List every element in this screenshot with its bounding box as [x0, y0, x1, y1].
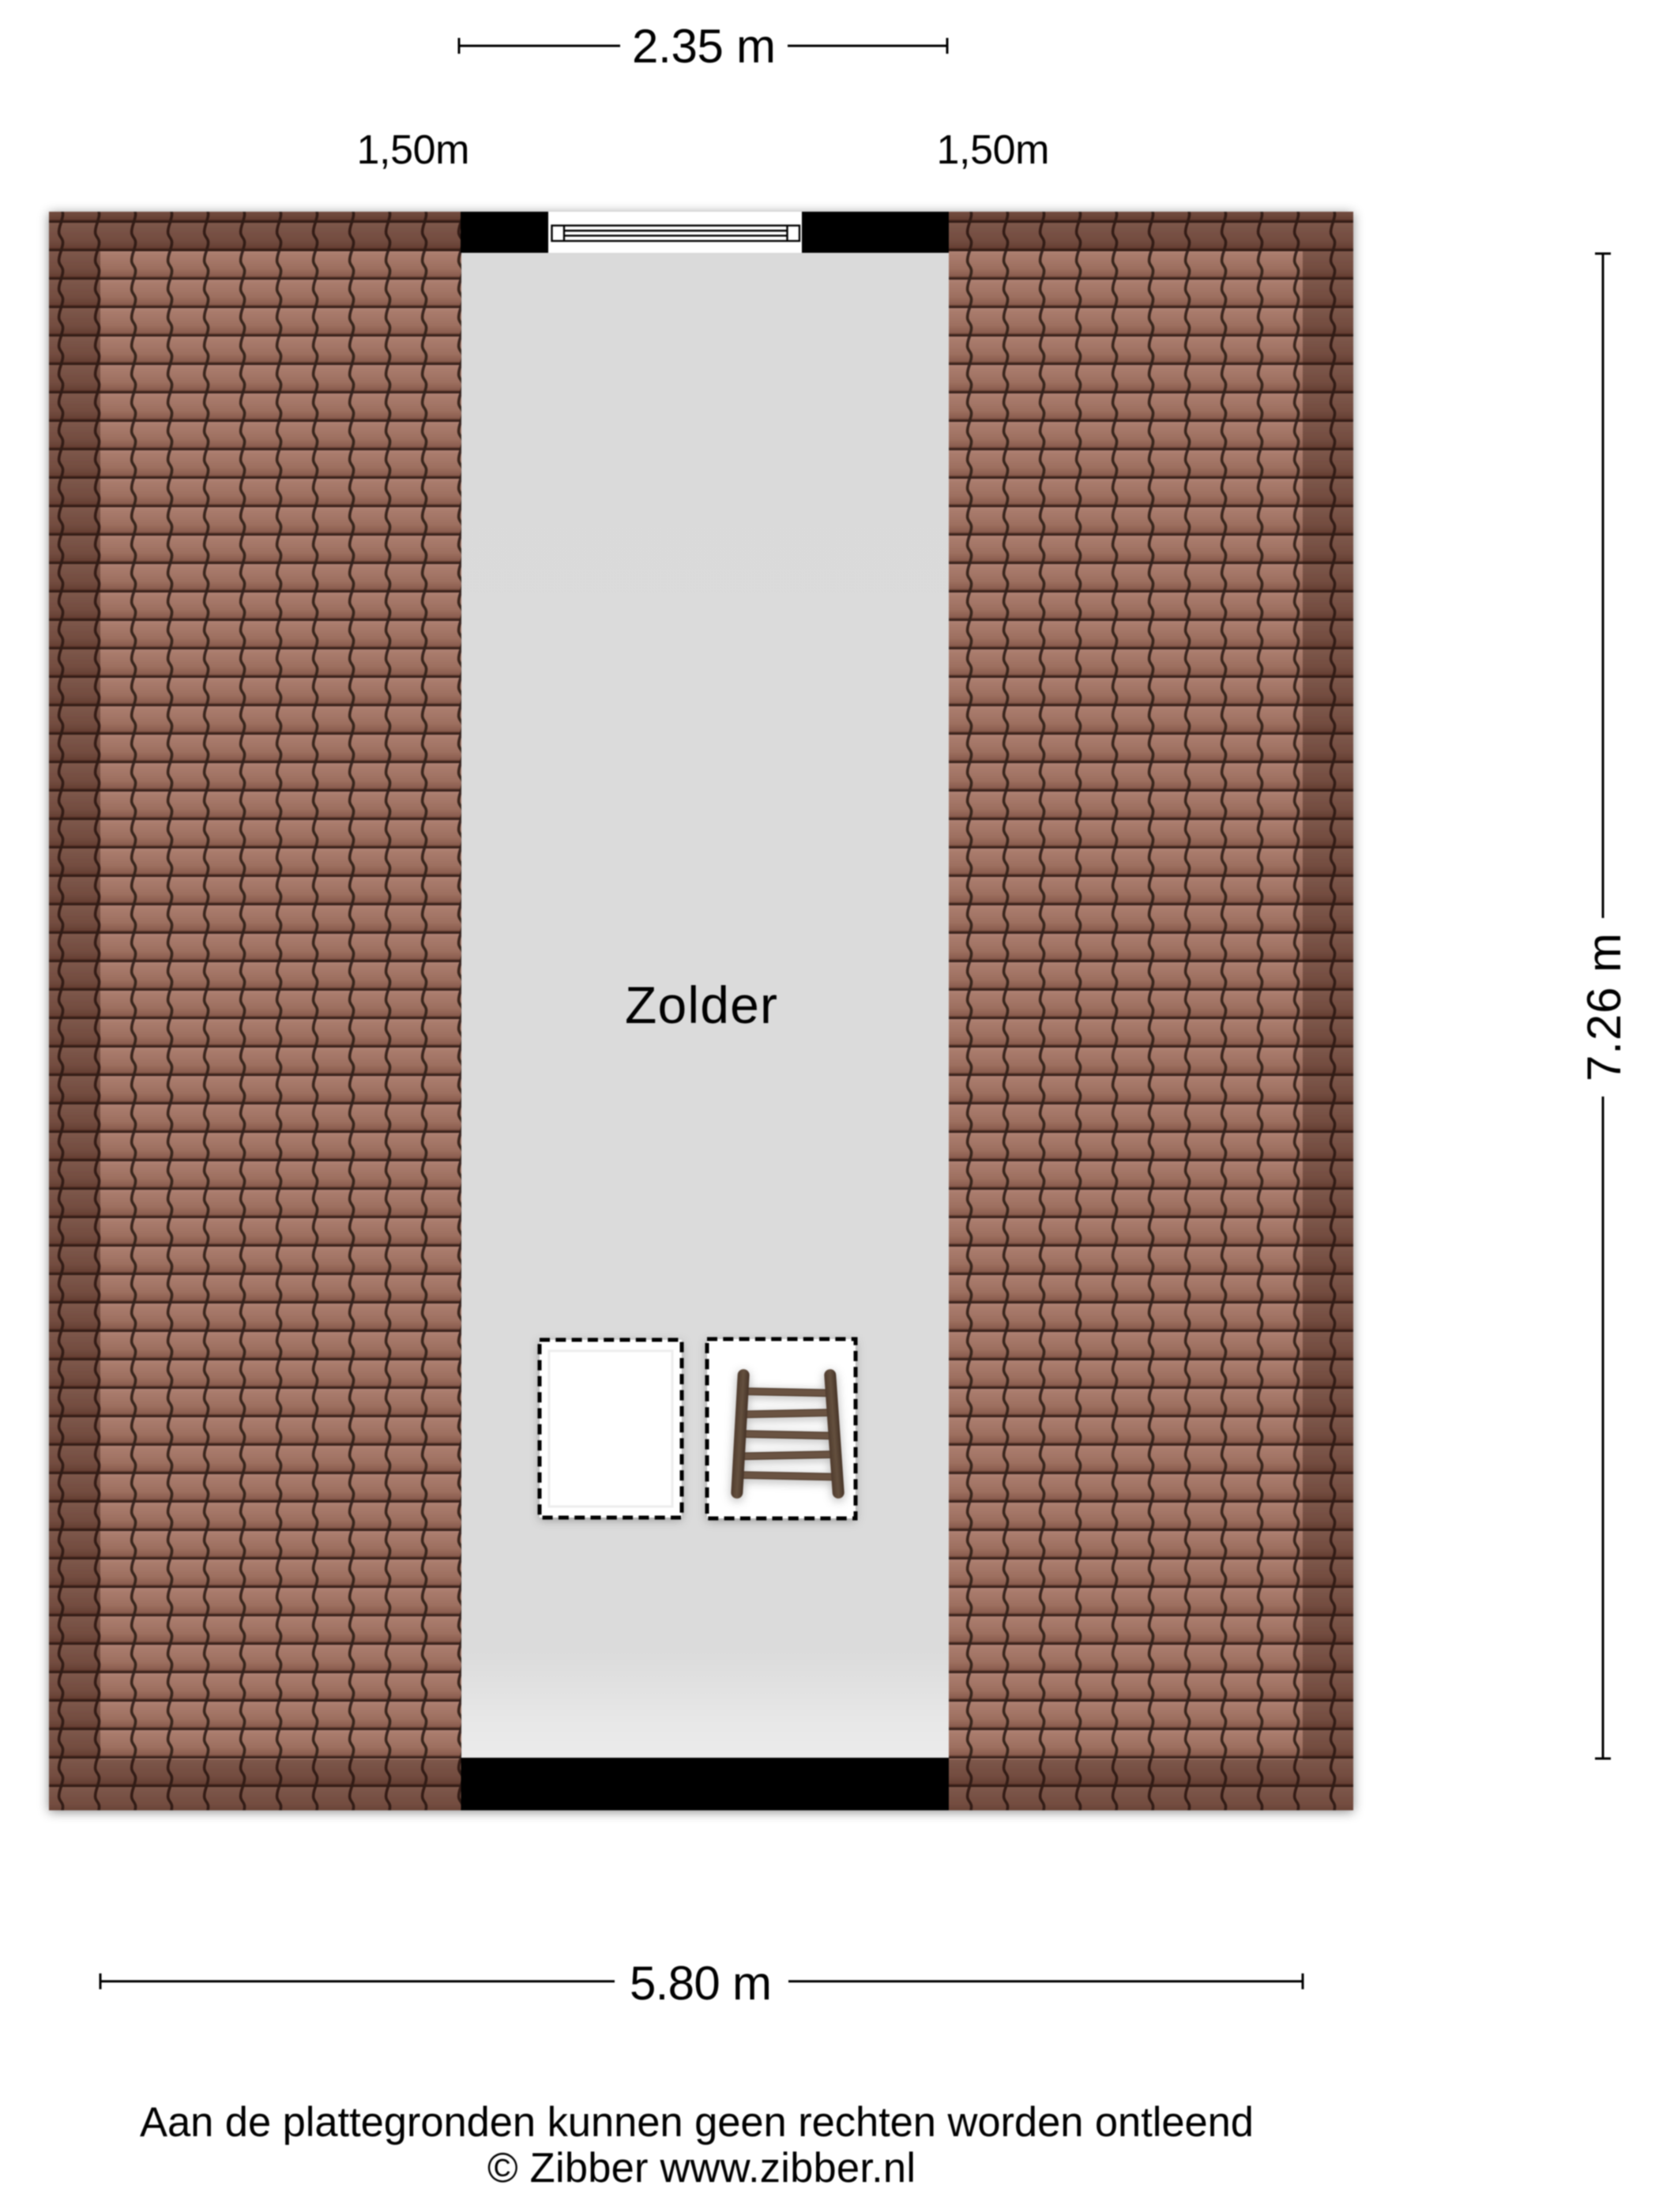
svg-text:1,50m: 1,50m	[937, 127, 1050, 173]
svg-text:© Zibber www.zibber.nl: © Zibber www.zibber.nl	[487, 2145, 916, 2191]
svg-text:7.26 m: 7.26 m	[1578, 933, 1631, 1082]
svg-text:1,50m: 1,50m	[357, 127, 470, 173]
svg-text:Zolder: Zolder	[625, 976, 777, 1034]
svg-text:Aan de plattegronden kunnen ge: Aan de plattegronden kunnen geen rechten…	[140, 2099, 1254, 2146]
svg-text:2.35 m: 2.35 m	[632, 20, 776, 73]
svg-text:5.80 m: 5.80 m	[630, 1957, 772, 2010]
